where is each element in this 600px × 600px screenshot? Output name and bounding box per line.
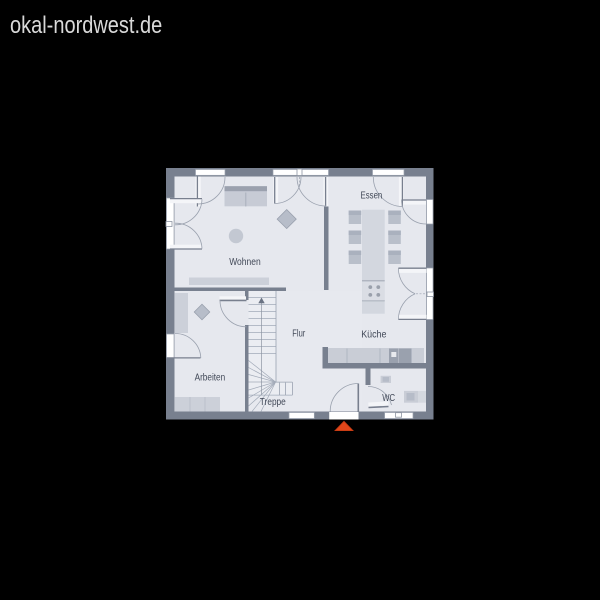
svg-text:Küche: Küche <box>361 329 387 340</box>
svg-text:Wohnen: Wohnen <box>229 257 261 268</box>
svg-text:Treppe: Treppe <box>260 397 286 408</box>
svg-text:Flur: Flur <box>292 329 306 340</box>
svg-text:WC: WC <box>382 393 395 404</box>
svg-text:Arbeiten: Arbeiten <box>195 373 226 384</box>
svg-text:Essen: Essen <box>361 190 383 201</box>
